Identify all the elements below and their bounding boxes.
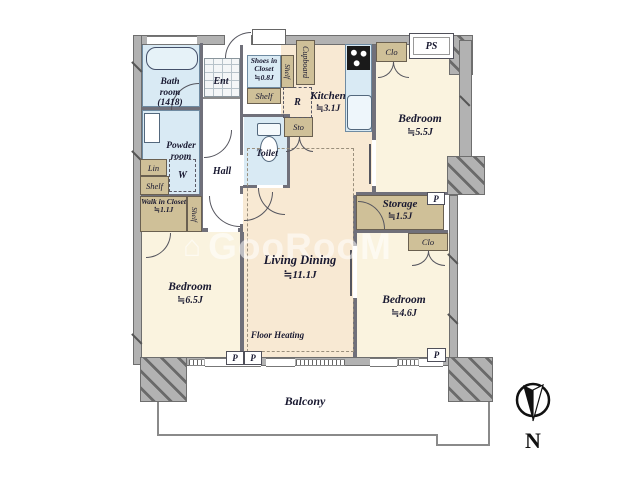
watermark-house-icon: ⌂ [183,230,202,264]
bath-size: (1418) [157,98,182,108]
bedroom-sw-area: ≒6.5J [177,295,203,306]
bedroom-se-area: ≒4.6J [391,308,417,319]
shelf-linen-box: Shelf [140,176,169,195]
pipe-marker-3: P [427,348,446,362]
compass: N [506,376,564,456]
toilet-label: Toilet [248,149,286,160]
shelf-below-shoes: Shelf [247,88,281,104]
shelf-beside-shoes-label: Shelf [283,64,292,79]
powder-door [204,130,232,158]
living-dining-area: ≒11.1J [283,269,316,281]
entrance-door [225,32,251,58]
pipe-marker-2: P [244,351,262,365]
bedroom-ne-name: Bedroom [398,113,441,125]
storage-name: Storage [383,198,418,210]
shelf-linen-label: Shelf [146,181,163,191]
storage-label: Storage ≒1.5J [368,198,432,223]
kitchen-label: Kitchen ≒3.1J [303,90,353,115]
entrance-label: Ent [206,76,236,87]
floor-heating-label: Floor Heating [240,330,315,340]
shoes-in-closet-label: Shoes in Closet ≒0.8J [247,57,281,82]
walk-in-closet-label: Walk in Closet ≒1.1J [141,198,186,215]
bedroom-se-name: Bedroom [382,294,425,306]
shelf-below-shoes-label: Shelf [256,91,273,101]
bath-label: Bath room (1418) [150,77,190,109]
vent-window-1 [189,359,204,366]
pipe-marker-4-label: P [433,194,439,204]
balcony-railing-left [157,400,159,436]
bedroom-se-label: Bedroom ≒4.6J [376,294,432,320]
pillar-mid-right [447,156,485,195]
toilet-tank [257,123,281,136]
balcony-railing-right [488,400,490,446]
shelf-wic-label: Shelf [190,207,199,222]
bedroom-sw-label: Bedroom ≒6.5J [162,281,218,307]
bedroom-ne-sliding-door [372,140,376,186]
wall-hall-right-upper [240,45,243,155]
washer-box: W [169,159,196,192]
bedroom-ne-sliding-door-leaf [369,144,371,184]
cupboard-label: Cupboard [301,46,310,78]
compass-north-label: N [525,428,541,453]
sto-box: Sto [284,117,313,137]
balcony-railing-bottom [157,434,438,436]
floor-plan: Shoes in Closet ≒0.8J Shelf Shelf Cupboa… [0,0,640,480]
bathtub [146,47,198,70]
pipe-marker-4: P [427,192,445,205]
vent-window-2 [296,359,345,366]
powder-label: Powder room [158,141,204,162]
pillar-bottom-right [448,357,493,402]
bedroom-sw-name: Bedroom [168,281,211,293]
pipe-marker-1-label: P [232,353,238,363]
entrance-step-line [203,97,241,99]
ps-label: PS [426,41,438,52]
hall-label: Hall [206,166,238,177]
bedroom-sw-door [209,196,240,227]
vent-window-3 [398,359,418,366]
bath-name: Bath room [160,77,181,98]
wall-right-upper [459,40,472,158]
balcony-railing-bottom-right [436,444,490,446]
pipe-marker-3-label: P [434,350,440,360]
bedroom-ne-label: Bedroom ≒5.5J [392,113,448,139]
refrigerator-label: R [294,97,301,108]
bedroom-ne-area: ≒5.5J [407,127,433,138]
pillar-bottom-left [140,357,187,402]
wall-right-lower [449,195,458,360]
cupboard: Cupboard [296,40,315,85]
pipe-marker-1: P [226,351,244,365]
ps-box: PS [409,33,454,59]
living-dining-label: Living Dining ≒11.1J [255,253,345,281]
powder-vanity [144,113,160,143]
closet-north-label: Clo [385,47,397,57]
walk-in-closet-area: ≒1.1J [154,205,173,214]
sto-label: Sto [293,122,304,132]
living-window-2 [266,358,295,367]
kitchen-area: ≒3.1J [316,104,341,114]
living-dining-name: Living Dining [264,253,337,267]
shoes-in-closet-name: Shoes in Closet [251,56,277,73]
kitchen-name: Kitchen [310,90,345,102]
shelf-beside-shoes: Shelf [281,55,294,88]
stove [347,46,370,70]
closet-north: Clo [376,42,407,62]
compass-icon: N [506,376,564,456]
washer-label: W [178,170,187,181]
shoes-in-closet-area: ≒0.8J [254,73,273,82]
storage-area: ≒1.5J [388,212,413,222]
bath-window [147,36,197,45]
bedroom-se-window-1 [370,358,397,367]
linen-label: Lin [148,163,159,173]
pipe-marker-2-label: P [250,353,256,363]
wall-niche [252,29,286,45]
balcony-label: Balcony [275,395,335,408]
